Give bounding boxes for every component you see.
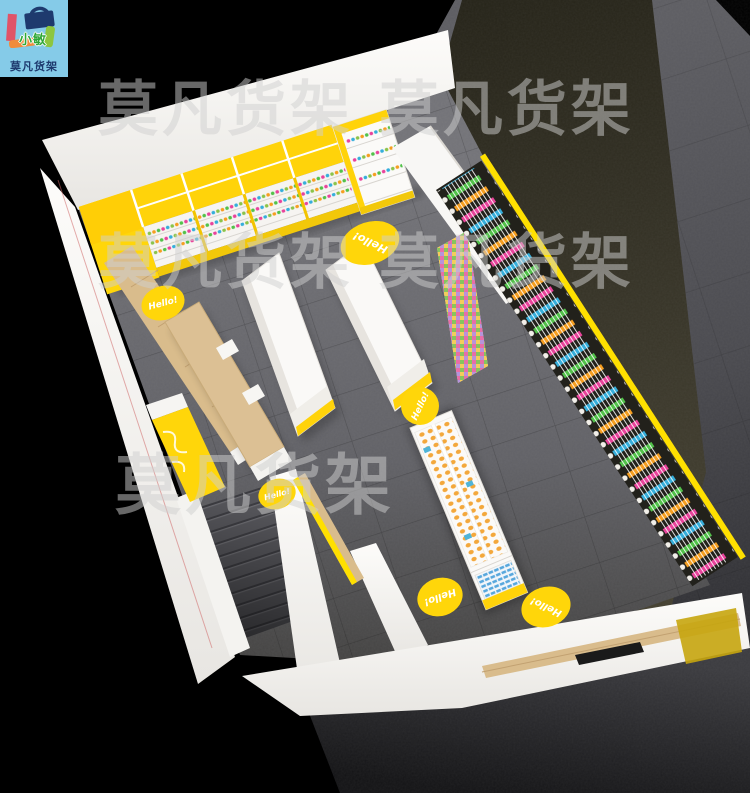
scene-canvas: Hello! Hello! Hello! Hello! Hello! Hello… [0,0,750,793]
brand-logo: 小敏 莫凡货架 [0,0,68,77]
watermark-row: 莫凡货架 [115,447,395,524]
logo-brand-text: 莫凡货架 [0,58,68,74]
logo-small-text: 小敏 [19,29,47,48]
watermark-row: 莫凡货架 莫凡货架 [98,75,635,145]
store-render-scene: Hello! Hello! Hello! Hello! Hello! Hello… [0,0,750,793]
hello-gondola-badge: Hello! [401,387,439,425]
watermark-row: 莫凡货架 莫凡货架 [98,228,635,298]
